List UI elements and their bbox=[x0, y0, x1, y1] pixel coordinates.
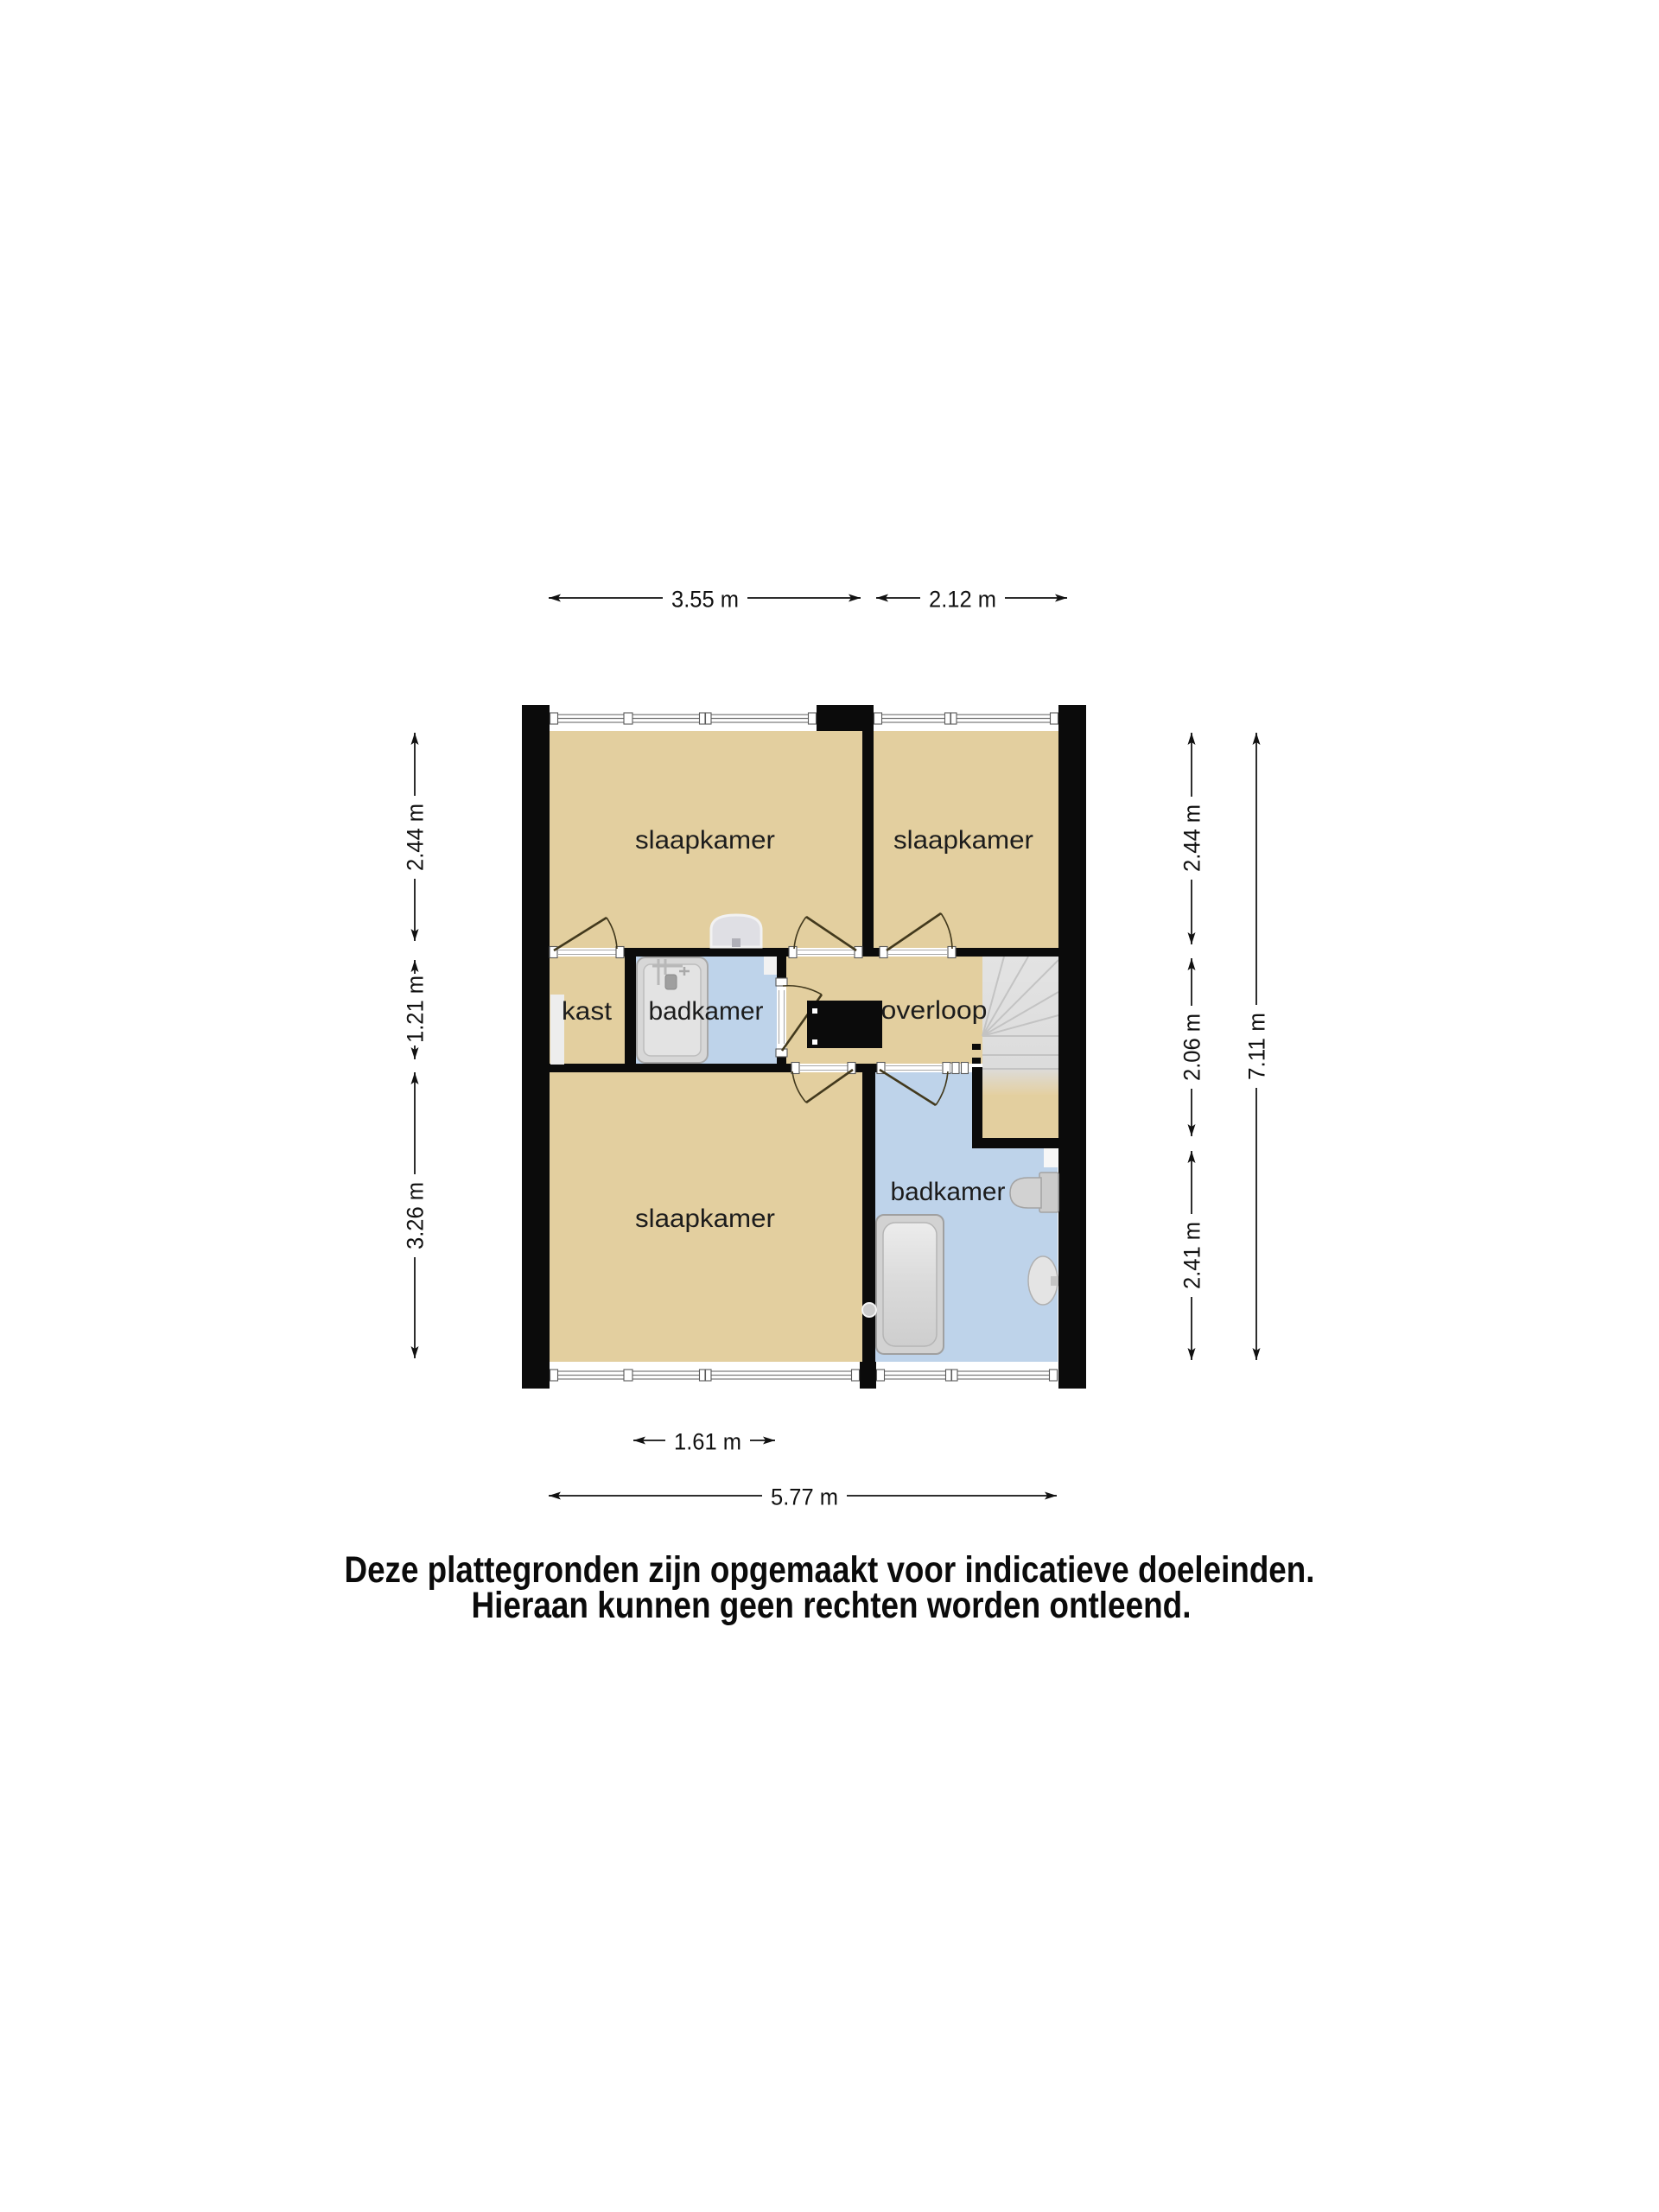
svg-text:overloop: overloop bbox=[881, 996, 988, 1025]
svg-text:slaapkamer: slaapkamer bbox=[893, 826, 1033, 855]
svg-text:2.12 m: 2.12 m bbox=[929, 587, 996, 613]
svg-text:3.55 m: 3.55 m bbox=[671, 587, 739, 613]
svg-text:7.11 m: 7.11 m bbox=[1244, 1013, 1270, 1080]
svg-text:slaapkamer: slaapkamer bbox=[635, 1205, 775, 1233]
svg-text:1.21 m: 1.21 m bbox=[403, 976, 429, 1043]
svg-text:badkamer: badkamer bbox=[891, 1178, 1006, 1206]
svg-text:kast: kast bbox=[562, 997, 613, 1026]
svg-text:Hieraan kunnen geen rechten wo: Hieraan kunnen geen rechten worden ontle… bbox=[472, 1585, 1192, 1626]
svg-text:5.77 m: 5.77 m bbox=[771, 1484, 838, 1510]
svg-text:3.26 m: 3.26 m bbox=[403, 1182, 429, 1249]
svg-text:2.06 m: 2.06 m bbox=[1179, 1014, 1205, 1081]
svg-text:1.61 m: 1.61 m bbox=[674, 1429, 741, 1455]
svg-text:slaapkamer: slaapkamer bbox=[635, 826, 775, 855]
svg-text:2.44 m: 2.44 m bbox=[403, 804, 429, 871]
svg-text:badkamer: badkamer bbox=[649, 997, 764, 1026]
svg-text:2.41 m: 2.41 m bbox=[1179, 1222, 1205, 1289]
svg-text:2.44 m: 2.44 m bbox=[1179, 804, 1205, 872]
